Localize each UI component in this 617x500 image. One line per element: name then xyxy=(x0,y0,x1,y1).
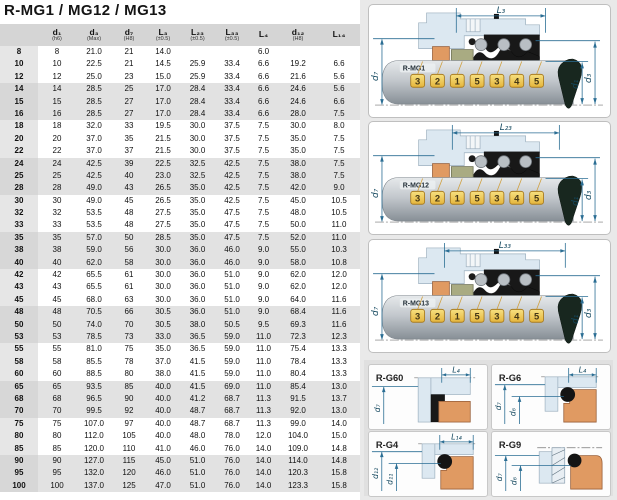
cell: 7.5 xyxy=(249,158,278,170)
table-row: 505074.07030.538.050.59.569.311.6 xyxy=(0,319,360,331)
cell: 46.0 xyxy=(215,244,249,256)
column-header: d₇(H8) xyxy=(112,28,146,43)
cell: 68.7 xyxy=(215,405,249,417)
table-row: 7575107.09740.048.768.711.399.014.0 xyxy=(0,418,360,430)
cell: 30.0 xyxy=(180,145,215,157)
dimension-table: d₁(h6)d₃(Max)d₇(H8)L₃(±0.5)L₂₃(±0.5)L₃₃(… xyxy=(0,24,360,492)
cell: 35.0 xyxy=(180,232,215,244)
row-header: 90 xyxy=(0,455,38,467)
cell: 33.4 xyxy=(215,83,249,95)
cell: 49.0 xyxy=(76,182,112,194)
row-header: 28 xyxy=(0,182,38,194)
spring xyxy=(520,274,532,286)
cell: 127.0 xyxy=(76,455,112,467)
cell: 27.5 xyxy=(146,207,180,219)
cell: 16 xyxy=(38,108,76,120)
cell: 41.5 xyxy=(180,381,215,393)
cell: 26.5 xyxy=(146,195,180,207)
elastomer-ring xyxy=(469,155,476,162)
cell: 22.5 xyxy=(146,158,180,170)
cell: 23 xyxy=(112,71,146,83)
cell: 7.5 xyxy=(249,232,278,244)
cell: 40 xyxy=(38,257,76,269)
table-row: 585885.57837.041.559.011.078.413.3 xyxy=(0,356,360,368)
cell: 66 xyxy=(112,306,146,318)
row-header: 75 xyxy=(0,418,38,430)
dimension-label: d₇ xyxy=(373,403,382,412)
housing-arm xyxy=(431,378,470,395)
cell xyxy=(215,46,249,58)
cell: 60 xyxy=(38,368,76,380)
cell: 20 xyxy=(38,133,76,145)
cell: 100 xyxy=(38,480,76,492)
part-number: 3 xyxy=(494,310,499,321)
row-header: 85 xyxy=(0,443,38,455)
cell: 28.5 xyxy=(76,83,112,95)
cell: 25 xyxy=(112,83,146,95)
part-number: 5 xyxy=(474,192,479,203)
cell: 35.0 xyxy=(278,133,318,145)
cell: 14 xyxy=(38,83,76,95)
table-row: 454568.06330.036.051.09.064.011.6 xyxy=(0,294,360,306)
row-header: 32 xyxy=(0,207,38,219)
spring xyxy=(520,39,532,51)
cell: 7.5 xyxy=(249,219,278,231)
cell: 30.5 xyxy=(146,306,180,318)
set-screw xyxy=(466,254,480,267)
cell: 58.0 xyxy=(278,257,318,269)
cell: 70 xyxy=(112,319,146,331)
cell: 23.0 xyxy=(146,170,180,182)
cell: 48.7 xyxy=(180,418,215,430)
cell: 95 xyxy=(38,467,76,479)
cell: 10.3 xyxy=(318,244,360,256)
cell: 17.0 xyxy=(146,96,180,108)
row-header: 50 xyxy=(0,319,38,331)
row-header: 33 xyxy=(0,219,38,231)
table-row: 9595132.012046.051.076.014.0120.315.8 xyxy=(0,467,360,479)
cell: 68.7 xyxy=(215,418,249,430)
cell: 120.3 xyxy=(278,467,318,479)
table-row: 484870.56630.536.051.09.068.411.6 xyxy=(0,306,360,318)
cell: 14.0 xyxy=(318,418,360,430)
row-header: 38 xyxy=(0,244,38,256)
table-row: 202037.03521.530.037.57.535.07.5 xyxy=(0,133,360,145)
cell: 107.0 xyxy=(76,418,112,430)
cell: 120.0 xyxy=(76,443,112,455)
cell: 30.5 xyxy=(146,319,180,331)
table-row: 101022.52114.525.933.46.619.26.6 xyxy=(0,58,360,70)
cell: 59.0 xyxy=(76,244,112,256)
cell: 14.8 xyxy=(318,443,360,455)
cell: 46.0 xyxy=(180,443,215,455)
cell: 7.5 xyxy=(249,195,278,207)
cell: 41.5 xyxy=(180,356,215,368)
row-header: 24 xyxy=(0,158,38,170)
seat-drawing-g4: R-G4 L₁₄ d₁₂ d₁₁ xyxy=(369,432,485,494)
table-row: 222237.03721.530.037.57.535.07.5 xyxy=(0,145,360,157)
cell: 99.0 xyxy=(278,418,318,430)
cell: 38 xyxy=(38,244,76,256)
cell: 70 xyxy=(38,405,76,417)
cell: 41.2 xyxy=(180,393,215,405)
table-row: 9090127.011545.051.076.014.0114.014.8 xyxy=(0,455,360,467)
cell: 51.0 xyxy=(215,306,249,318)
detail-r-g6: R-G6 L₄ d₇ d₆ xyxy=(491,364,611,430)
dimension-label-top: L₃ xyxy=(497,6,506,16)
cell: 14.5 xyxy=(146,58,180,70)
cell: 85 xyxy=(112,381,146,393)
cell: 76.0 xyxy=(215,480,249,492)
cell: 49.0 xyxy=(76,195,112,207)
row-header: 30 xyxy=(0,195,38,207)
cell: 11.0 xyxy=(249,368,278,380)
column-header xyxy=(0,35,38,36)
table-row: 282849.04326.535.042.57.542.09.0 xyxy=(0,182,360,194)
cell: 85 xyxy=(38,443,76,455)
spring xyxy=(498,39,510,51)
cell: 25.9 xyxy=(180,58,215,70)
row-header: 42 xyxy=(0,269,38,281)
cell: 7.5 xyxy=(249,170,278,182)
cell: 76.0 xyxy=(215,443,249,455)
cell: 38.0 xyxy=(278,170,318,182)
cell: 36.5 xyxy=(180,331,215,343)
part-number: 2 xyxy=(435,75,440,86)
cell: 32.5 xyxy=(180,158,215,170)
cell: 47.5 xyxy=(215,232,249,244)
cell: 37.0 xyxy=(76,145,112,157)
cell: 36.5 xyxy=(180,343,215,355)
dimension-label: d₇ xyxy=(495,472,504,481)
cell: 27 xyxy=(112,96,146,108)
cell: 68 xyxy=(38,393,76,405)
row-header: 16 xyxy=(0,108,38,120)
cell: 12.0 xyxy=(318,281,360,293)
cell: 28 xyxy=(38,182,76,194)
detail-title: R-G6 xyxy=(499,373,521,383)
cell: 92.0 xyxy=(278,405,318,417)
cell: 37.0 xyxy=(146,356,180,368)
cell: 92 xyxy=(112,405,146,417)
cell: 123.3 xyxy=(278,480,318,492)
cell: 75.4 xyxy=(278,343,318,355)
cell: 36.0 xyxy=(180,294,215,306)
cell: 85.4 xyxy=(278,381,318,393)
table-row: 151528.52717.028.433.46.624.66.6 xyxy=(0,96,360,108)
table-row: 383859.05630.036.046.09.055.010.3 xyxy=(0,244,360,256)
cell: 51.0 xyxy=(215,281,249,293)
part-number: 4 xyxy=(514,75,520,86)
cell: 62.0 xyxy=(278,269,318,281)
cell: 28.5 xyxy=(146,232,180,244)
row-header: 12 xyxy=(0,71,38,83)
cell: 35 xyxy=(38,232,76,244)
row-header: 70 xyxy=(0,405,38,417)
cell: 70.5 xyxy=(76,306,112,318)
cell: 32 xyxy=(38,207,76,219)
cell: 37.5 xyxy=(215,120,249,132)
cell: 105 xyxy=(112,430,146,442)
cell: 41.0 xyxy=(146,443,180,455)
row-header: 25 xyxy=(0,170,38,182)
cell: 115 xyxy=(112,455,146,467)
cell: 33.4 xyxy=(215,108,249,120)
cell: 59.0 xyxy=(215,343,249,355)
set-screw xyxy=(466,136,480,149)
cell: 7.5 xyxy=(249,182,278,194)
cell: 52.0 xyxy=(278,232,318,244)
cell: 72.3 xyxy=(278,331,318,343)
dimension-label-d3: d₃ xyxy=(584,190,594,200)
table-row: 242442.53922.532.542.57.538.07.5 xyxy=(0,158,360,170)
cell: 109.0 xyxy=(278,443,318,455)
seal-drawing-mg13: R-MG13 3 2 1 5 3 4 5 L₃₃ d₇ d₁ d₃ xyxy=(369,240,608,350)
cell: 11.6 xyxy=(318,306,360,318)
cell: 53 xyxy=(38,331,76,343)
cell: 58 xyxy=(38,356,76,368)
column-header: d₁(h6) xyxy=(38,28,76,43)
cell: 21 xyxy=(112,46,146,58)
cell xyxy=(278,46,318,58)
dimension-label: d₆ xyxy=(510,477,519,485)
part-number: 5 xyxy=(534,310,539,321)
dimension-label-d3: d₃ xyxy=(584,308,594,318)
cell: 30.0 xyxy=(180,120,215,132)
table-row: 424265.56130.036.051.09.062.012.0 xyxy=(0,269,360,281)
cell: 35.0 xyxy=(180,195,215,207)
cell: 33.4 xyxy=(215,58,249,70)
cell: 59.0 xyxy=(215,356,249,368)
seal-drawing-mg12: R-MG12 3 2 1 5 3 4 5 L₂₃ d₇ d₁ d₃ xyxy=(369,122,608,232)
row-header: 22 xyxy=(0,145,38,157)
seal-seat xyxy=(433,164,450,178)
part-number: 1 xyxy=(455,75,460,86)
cell: 59.0 xyxy=(215,331,249,343)
cell: 64.0 xyxy=(278,294,318,306)
table-row: 141428.52517.028.433.46.624.65.6 xyxy=(0,83,360,95)
part-number: 3 xyxy=(415,192,420,203)
cell: 88.5 xyxy=(76,368,112,380)
cell: 8.0 xyxy=(318,120,360,132)
row-header: 8 xyxy=(0,46,38,58)
seal-face xyxy=(451,167,473,178)
cell: 24.6 xyxy=(278,96,318,108)
cell: 51.0 xyxy=(180,480,215,492)
cell: 6.0 xyxy=(249,46,278,58)
table-row: 333353.54827.535.047.57.550.011.0 xyxy=(0,219,360,231)
column-header: d₃(Max) xyxy=(76,28,112,43)
housing-arm xyxy=(435,444,473,455)
cell: 7.5 xyxy=(249,120,278,132)
spring xyxy=(475,156,487,168)
cell: 9.0 xyxy=(249,244,278,256)
cell: 33 xyxy=(38,219,76,231)
cell: 15.0 xyxy=(146,71,180,83)
cell: 96.5 xyxy=(76,393,112,405)
cell: 53.5 xyxy=(76,207,112,219)
cell: 10 xyxy=(38,58,76,70)
cell: 6.6 xyxy=(249,96,278,108)
detail-r-g60: R-G60 L₄ d₇ xyxy=(368,364,488,430)
cell: 24 xyxy=(38,158,76,170)
cell: 10.5 xyxy=(318,207,360,219)
cell: 9.5 xyxy=(249,319,278,331)
detail-title: R-G4 xyxy=(376,440,399,450)
row-header: 43 xyxy=(0,281,38,293)
row-header: 68 xyxy=(0,393,38,405)
cell: 42.5 xyxy=(76,170,112,182)
table-header: d₁(h6)d₃(Max)d₇(H8)L₃(±0.5)L₂₃(±0.5)L₃₃(… xyxy=(0,24,360,46)
cell: 32.0 xyxy=(76,120,112,132)
cell: 13.3 xyxy=(318,356,360,368)
cell: 81.0 xyxy=(76,343,112,355)
cell: 80.4 xyxy=(278,368,318,380)
cell: 15 xyxy=(38,96,76,108)
cell: 37.0 xyxy=(76,133,112,145)
table-row: 707099.59240.048.768.711.392.013.0 xyxy=(0,405,360,417)
table-row: 404062.05830.036.046.09.058.010.8 xyxy=(0,257,360,269)
cell: 37.5 xyxy=(215,133,249,145)
cell: 137.0 xyxy=(76,480,112,492)
table-row: 555581.07535.036.559.011.075.413.3 xyxy=(0,343,360,355)
cell: 40.0 xyxy=(146,381,180,393)
cell: 65.5 xyxy=(76,269,112,281)
part-number: 5 xyxy=(474,75,479,86)
cell: 41.5 xyxy=(180,368,215,380)
cell: 7.5 xyxy=(249,145,278,157)
o-ring xyxy=(560,387,575,402)
housing xyxy=(418,378,431,422)
cell: 48.0 xyxy=(278,207,318,219)
cell: 76.0 xyxy=(215,467,249,479)
dimension-label-d7: d₇ xyxy=(371,71,381,81)
cell: 42 xyxy=(38,269,76,281)
seal-diagram-mg12: R-MG12 3 2 1 5 3 4 5 L₂₃ d₇ d₁ d₃ xyxy=(368,121,611,235)
dimension-label: d₇ xyxy=(494,401,503,410)
cell: 110 xyxy=(112,443,146,455)
cell: 11.0 xyxy=(318,232,360,244)
row-header: 10 xyxy=(0,58,38,70)
cell: 104.0 xyxy=(278,430,318,442)
cell: 30.0 xyxy=(278,120,318,132)
cell: 15.8 xyxy=(318,480,360,492)
cell: 45.0 xyxy=(146,455,180,467)
row-header: 15 xyxy=(0,96,38,108)
cell: 27.5 xyxy=(146,219,180,231)
cell: 18 xyxy=(38,120,76,132)
table-row: 8080112.010540.048.078.012.0104.015.0 xyxy=(0,430,360,442)
cell: 51.0 xyxy=(180,467,215,479)
cell: 63 xyxy=(112,294,146,306)
cell: 28.4 xyxy=(180,108,215,120)
cell: 10.5 xyxy=(318,195,360,207)
cell: 15.0 xyxy=(318,430,360,442)
cell: 12.0 xyxy=(318,269,360,281)
drive-pin xyxy=(494,131,499,136)
cell: 35.0 xyxy=(180,207,215,219)
dimension-label-d3: d₃ xyxy=(584,73,594,83)
seat-drawing-g60: R-G60 L₄ d₇ xyxy=(369,365,485,427)
column-header: L₂₃(±0.5) xyxy=(180,28,215,43)
page-title: R-MG1 / MG12 / MG13 xyxy=(4,2,167,19)
cell: 11.0 xyxy=(249,331,278,343)
cell: 13.7 xyxy=(318,393,360,405)
cell: 11.0 xyxy=(318,219,360,231)
diagram-panel: R-MG1 3 2 1 5 3 4 5 L₃ d₇ d₁ d₃ xyxy=(360,0,617,500)
seal-face xyxy=(451,50,473,61)
cell: 37 xyxy=(112,145,146,157)
cell: 21.6 xyxy=(278,71,318,83)
cell: 40.0 xyxy=(146,430,180,442)
row-header: 18 xyxy=(0,120,38,132)
elastomer-ring xyxy=(469,38,476,45)
cell: 42.5 xyxy=(215,195,249,207)
row-header: 80 xyxy=(0,430,38,442)
cell: 14.0 xyxy=(146,46,180,58)
cell: 12 xyxy=(38,71,76,83)
row-header: 14 xyxy=(0,83,38,95)
seat-drawing-g9: R-G9 d₇ d₆ xyxy=(492,432,608,494)
row-header: 35 xyxy=(0,232,38,244)
cell: 9.0 xyxy=(249,281,278,293)
cell: 13.3 xyxy=(318,368,360,380)
housing xyxy=(539,452,552,483)
seal-model-label: R-MG12 xyxy=(403,182,429,189)
cell: 28.5 xyxy=(76,96,112,108)
table-row: 535378.57333.036.559.011.072.312.3 xyxy=(0,331,360,343)
cell: 9.0 xyxy=(249,257,278,269)
cell: 68.7 xyxy=(215,393,249,405)
cell: 8 xyxy=(38,46,76,58)
cell: 7.5 xyxy=(318,108,360,120)
cell: 48.0 xyxy=(180,430,215,442)
cell: 5.6 xyxy=(318,83,360,95)
cell: 35.0 xyxy=(180,182,215,194)
housing xyxy=(545,377,558,411)
cell: 36.0 xyxy=(180,306,215,318)
cell: 30.0 xyxy=(146,281,180,293)
cell: 40.0 xyxy=(146,418,180,430)
cell xyxy=(318,46,360,58)
cell: 69.3 xyxy=(278,319,318,331)
seat-drawing-g6: R-G6 L₄ d₇ d₆ xyxy=(492,365,608,427)
detail-r-g4: R-G4 L₁₄ d₁₂ d₁₁ xyxy=(368,431,488,497)
seal-seat xyxy=(433,282,450,296)
part-number: 5 xyxy=(534,75,539,86)
cell: 36.0 xyxy=(180,281,215,293)
cell: 14.0 xyxy=(249,443,278,455)
part-number: 3 xyxy=(494,75,499,86)
part-number: 4 xyxy=(514,192,520,203)
cell: 58 xyxy=(112,257,146,269)
row-header: 53 xyxy=(0,331,38,343)
o-ring xyxy=(437,454,452,469)
cell: 15.8 xyxy=(318,467,360,479)
cell: 6.6 xyxy=(249,71,278,83)
cell: 33 xyxy=(112,120,146,132)
cell: 57.0 xyxy=(76,232,112,244)
table-row: 686896.59040.041.268.711.391.513.7 xyxy=(0,393,360,405)
cell: 13.0 xyxy=(318,381,360,393)
cell: 48 xyxy=(112,207,146,219)
cell: 7.5 xyxy=(249,133,278,145)
cell: 12.0 xyxy=(249,430,278,442)
row-header: 65 xyxy=(0,381,38,393)
table-row: 606088.58038.041.559.011.080.413.3 xyxy=(0,368,360,380)
cell: 6.6 xyxy=(318,96,360,108)
cell: 74.0 xyxy=(76,319,112,331)
